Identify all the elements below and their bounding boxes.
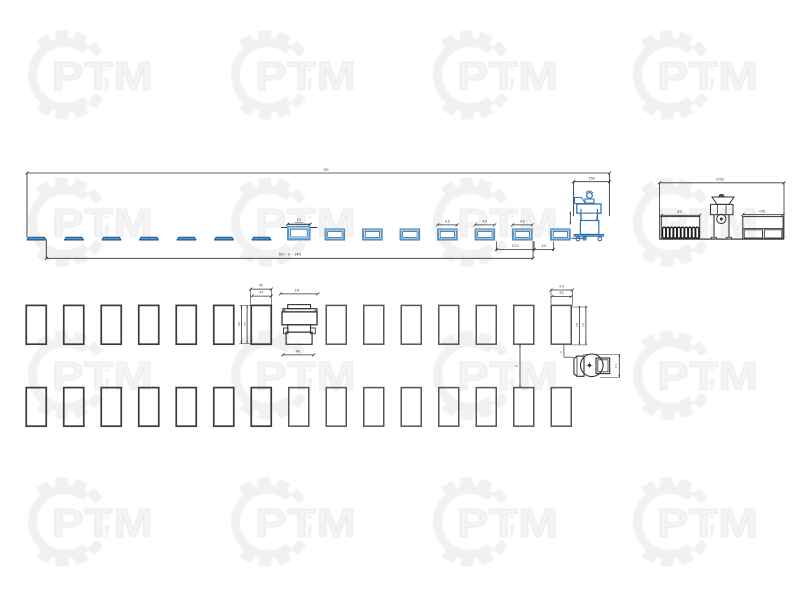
svg-text:7′4: 7′4 [582, 323, 586, 327]
svg-text:1′8: 1′8 [295, 289, 299, 293]
svg-text:1′2: 1′2 [297, 218, 302, 222]
svg-text:1′2.0: 1′2.0 [512, 244, 519, 248]
svg-text:7′0: 7′0 [575, 323, 579, 327]
svg-text:≈0′6: ≈0′6 [759, 209, 765, 213]
svg-text:4.0: 4.0 [542, 244, 547, 248]
svg-text:h: h [560, 350, 562, 354]
svg-text:5′0: 5′0 [677, 210, 681, 214]
svg-text:4.6: 4.6 [520, 219, 525, 223]
svg-text:1′1: 1′1 [614, 364, 618, 368]
svg-text:4′2: 4′2 [259, 284, 263, 288]
svg-text:4′0: 4′0 [559, 291, 563, 295]
svg-text:5′0 – 9 – 14′0: 5′0 – 9 – 14′0 [279, 253, 302, 257]
svg-text:9′0: 9′0 [324, 168, 329, 172]
svg-text:4′0: 4′0 [296, 350, 300, 354]
svg-text:≈1′00: ≈1′00 [715, 178, 723, 182]
svg-text:4.6: 4.6 [445, 219, 450, 223]
svg-text:4.0: 4.0 [559, 285, 564, 289]
svg-text:4.6: 4.6 [483, 219, 488, 223]
svg-text:9′2: 9′2 [237, 322, 241, 326]
svg-text:1′50: 1′50 [588, 177, 594, 181]
svg-text:4′7: 4′7 [259, 291, 263, 295]
svg-text:7′6: 7′6 [243, 322, 247, 326]
